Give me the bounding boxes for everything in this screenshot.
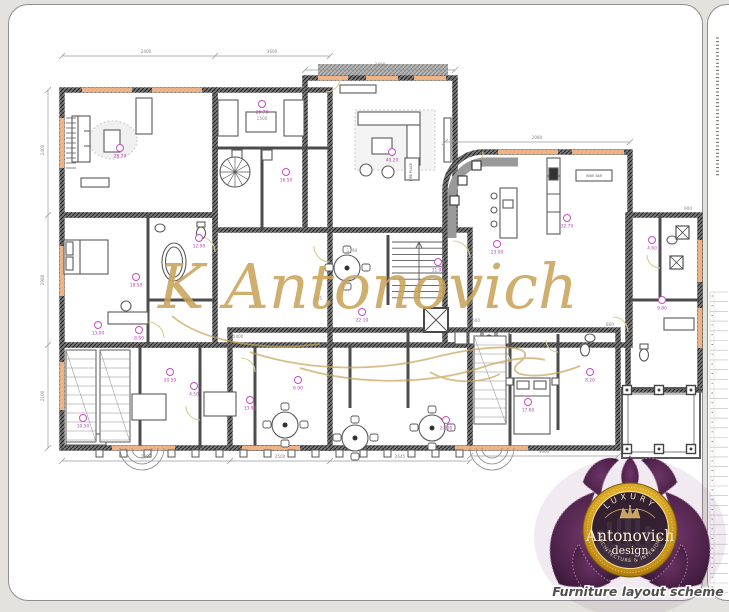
porch-column-dot xyxy=(690,389,693,392)
sofa xyxy=(218,100,238,136)
pilaster xyxy=(432,450,439,457)
bed xyxy=(204,392,236,416)
desk xyxy=(108,312,148,324)
pilaster xyxy=(360,450,367,457)
pilaster xyxy=(384,450,391,457)
plan-annotation: FIRE PLACE xyxy=(409,163,413,181)
dim-label: 2980 xyxy=(40,274,45,285)
area-label-ring xyxy=(443,417,450,424)
appliance xyxy=(458,176,467,185)
pillow xyxy=(517,381,529,389)
area-label-ring xyxy=(117,145,124,152)
area-label-value: 4.60 xyxy=(647,246,657,252)
table-center xyxy=(283,423,288,428)
area-label-value: 18.50 xyxy=(130,283,143,289)
nightstand xyxy=(552,378,559,385)
toilet-tank xyxy=(640,344,648,349)
room-area-label: 4.60 xyxy=(647,237,657,252)
area-label-value: 8.20 xyxy=(585,378,595,384)
porch-column-dot xyxy=(658,448,661,451)
nightstand xyxy=(506,378,513,385)
room-area-label: 8.20 xyxy=(585,369,595,384)
pilaster xyxy=(456,450,463,457)
appliance xyxy=(450,196,459,205)
console xyxy=(340,85,376,93)
dim-label: 800 xyxy=(606,322,614,327)
watermark-text: K Antonovich xyxy=(157,250,578,323)
area-label-ring xyxy=(283,169,290,176)
area-label-ring xyxy=(564,215,571,222)
stool xyxy=(491,193,497,199)
caption-text: Furniture layout scheme xyxy=(552,584,723,599)
counter-unit xyxy=(455,332,467,344)
area-label-ring xyxy=(649,237,656,244)
area-label-value: 13.90 xyxy=(244,406,257,412)
room-area-label: 8.80 xyxy=(134,327,144,342)
area-label-ring xyxy=(295,377,302,384)
room-area-label: 32.70 xyxy=(561,215,574,230)
area-label-ring xyxy=(196,235,203,242)
oven xyxy=(549,168,558,180)
room-area-label: 6.90 xyxy=(293,377,303,392)
area-label-value: 16.50 xyxy=(280,178,293,184)
room-area-label: 20.50 xyxy=(164,369,177,384)
dim-label: 900 xyxy=(684,206,692,211)
chair xyxy=(410,424,418,431)
floorplan-canvas: 2400360024002080240029802100240025002645… xyxy=(0,0,729,612)
area-label-value: 6.90 xyxy=(293,386,303,392)
area-label-ring xyxy=(494,241,501,248)
area-label-ring xyxy=(525,399,532,406)
table-center xyxy=(353,436,358,441)
island-sink xyxy=(503,200,513,208)
area-label-value: 26.70 xyxy=(256,110,269,116)
sofa xyxy=(284,100,304,136)
chair xyxy=(281,403,289,410)
area-label-value: 40.20 xyxy=(386,158,399,164)
area-label-value: 4.50 xyxy=(189,392,199,398)
table-center xyxy=(430,426,435,431)
area-label-ring xyxy=(167,369,174,376)
chair xyxy=(351,453,359,460)
dim-label: 2400 xyxy=(40,144,45,155)
toilet xyxy=(581,344,590,356)
chair xyxy=(263,421,271,428)
area-label-ring xyxy=(133,274,140,281)
area-label-ring xyxy=(80,415,87,422)
pillow xyxy=(534,381,546,389)
sink xyxy=(585,334,595,342)
pilaster xyxy=(336,450,343,457)
area-label-value: 32.70 xyxy=(561,224,574,230)
pilaster xyxy=(240,450,247,457)
adjacent-sheet-vertical-text xyxy=(716,38,719,175)
area-label-value: 28.70 xyxy=(114,154,127,160)
dim-label: 2645 xyxy=(395,454,406,459)
area-label-value: 20.50 xyxy=(164,378,177,384)
chair xyxy=(428,443,436,450)
dim-label: 2400 xyxy=(375,62,386,67)
room-area-label: 16.50 xyxy=(280,169,293,184)
porch-column-dot xyxy=(626,448,629,451)
armchair xyxy=(382,166,394,178)
room-area-label: 13.00 xyxy=(92,322,105,337)
area-label-ring xyxy=(389,149,396,156)
chair xyxy=(351,416,359,423)
chair xyxy=(428,406,436,413)
pilaster xyxy=(408,450,415,457)
dim-label: 2400 xyxy=(141,454,152,459)
dim-label: 5400 xyxy=(233,334,244,339)
area-label-ring xyxy=(587,369,594,376)
area-label-ring xyxy=(659,297,666,304)
area-label-ring xyxy=(191,383,198,390)
pilaster xyxy=(96,450,103,457)
pilaster xyxy=(216,450,223,457)
brand-logo: LUXURY Antonovich · design · ARCHITECTUR… xyxy=(534,456,726,612)
area-label-ring xyxy=(95,322,102,329)
sofa xyxy=(358,112,420,125)
toilet xyxy=(640,349,649,361)
dim-label: 2400 xyxy=(141,49,152,54)
toilet-tank xyxy=(197,222,205,227)
dim-label: 1500 xyxy=(257,116,268,121)
pilaster xyxy=(288,450,295,457)
area-label-value: 13.00 xyxy=(92,331,105,337)
area-label-value: 9.80 xyxy=(657,306,667,312)
sofa xyxy=(136,98,152,134)
armchair xyxy=(360,164,372,176)
watermark: K Antonovich xyxy=(157,250,580,381)
room-area-label: 4.50 xyxy=(189,383,199,398)
pillow xyxy=(66,257,73,270)
area-label-value: 27.00 xyxy=(440,426,453,432)
bathtub xyxy=(664,318,694,330)
area-label-value: 17.60 xyxy=(522,408,535,414)
plan-annotation: WINE BAR xyxy=(586,174,603,178)
stool xyxy=(491,221,497,227)
area-label-value: 10.50 xyxy=(77,424,90,430)
watermark-flourish xyxy=(172,316,580,381)
room-area-label: 18.50 xyxy=(130,274,143,289)
pillow xyxy=(66,242,73,255)
area-label-ring xyxy=(259,101,266,108)
bed xyxy=(132,394,166,420)
stool xyxy=(491,207,497,213)
dim-label: 3600 xyxy=(267,49,278,54)
area-label-value: 8.80 xyxy=(134,336,144,342)
porch-column-dot xyxy=(626,389,629,392)
desk-chair xyxy=(121,301,131,311)
pilaster xyxy=(192,450,199,457)
dim-label: 2080 xyxy=(532,135,543,140)
room-area-label: 26.70 xyxy=(256,101,269,116)
dim-label: 4600 xyxy=(539,449,550,454)
kitchen-island xyxy=(500,188,517,238)
room-area-label: 9.80 xyxy=(657,297,667,312)
chair xyxy=(333,434,341,441)
appliance xyxy=(472,161,481,170)
area-label-ring xyxy=(247,397,254,404)
area-label-value: 12.90 xyxy=(193,244,206,250)
dim-label: 2500 xyxy=(275,454,286,459)
sink xyxy=(155,224,165,232)
pilaster xyxy=(168,450,175,457)
area-label-ring xyxy=(136,327,143,334)
console xyxy=(81,178,109,187)
pilaster xyxy=(264,450,271,457)
chair xyxy=(370,434,378,441)
porch-column-dot xyxy=(690,448,693,451)
armchair xyxy=(262,150,272,160)
chair xyxy=(281,440,289,447)
chair xyxy=(300,421,308,428)
dim-label: 2100 xyxy=(40,390,45,401)
porch-column-dot xyxy=(658,389,661,392)
pilaster xyxy=(312,450,319,457)
